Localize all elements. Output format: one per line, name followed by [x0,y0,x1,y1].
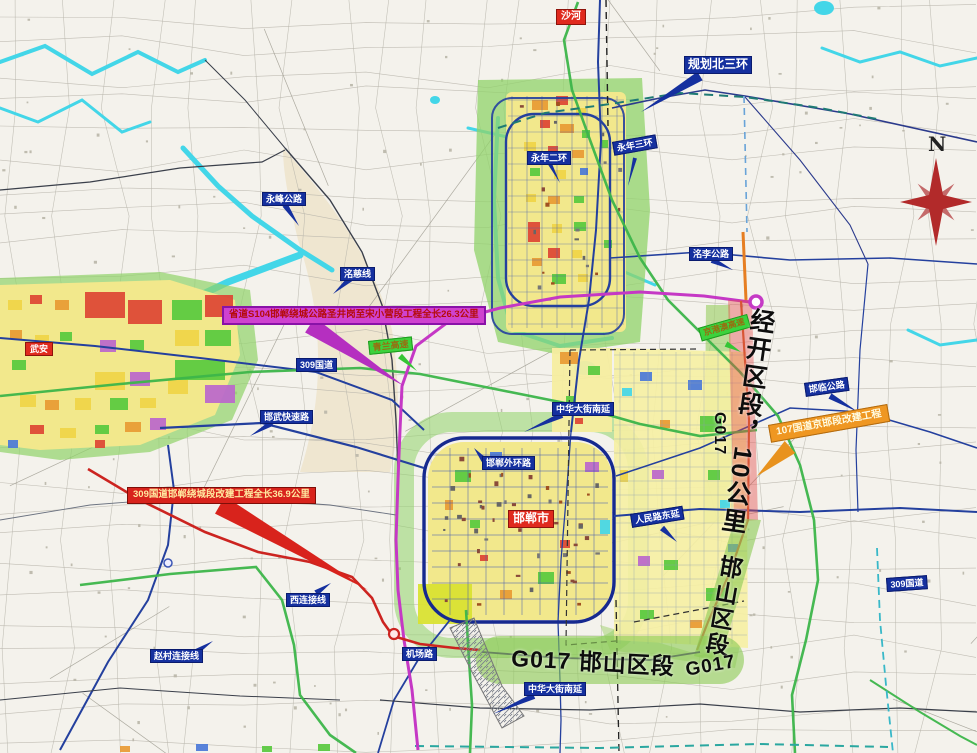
label-guihua-beisanhuan: 规划北三环 [684,56,752,74]
text-g017-bottom-right: G017 [684,651,738,681]
text-hanshan-section-vertical: 邯山区段 [700,553,744,660]
text-g017-right: G017 [710,412,728,455]
label-xi-lianjiexian: 西连接线 [286,593,330,607]
compass-north-letter: N [928,133,946,156]
text-g017-hanshan-band: G017 邯山区段 [511,645,676,680]
label-yongfeng-gonglu: 永峰公路 [262,192,306,206]
banner-309-project: 309国道邯郸绕城段改建工程全长36.9公里 [127,487,316,504]
label-309-guodao-east: 309国道 [886,575,928,592]
label-renminlu-dongyan: 人民路东延 [630,506,685,528]
label-309-guodao-west: 309国道 [296,358,337,372]
label-jichanglu: 机场路 [402,647,437,661]
map-canvas: 沙河规划北三环永年二环永年三环永峰公路洺慈线洺李公路省道S104邯郸绕城公路圣井… [0,0,977,753]
label-shahe: 沙河 [556,9,586,25]
banner-107-project: 107国道京邯段改建工程 [768,404,890,442]
label-zhaocun-lianjiexian: 赵村连接线 [150,649,203,663]
label-yongnian-sanhuan: 永年三环 [612,134,658,156]
label-handan-waihuanlu: 邯郸外环路 [482,456,535,470]
banner-s104-project: 省道S104邯郸绕城公路圣井岗至宋小营段工程全长26.3公里 [222,306,486,325]
label-qinglan-gaosu: 青兰高速 [368,336,413,355]
label-handan-city: 邯郸市 [508,510,554,528]
label-hanlin-gonglu: 邯临公路 [804,377,850,397]
label-yongnian-erhuan: 永年二环 [527,151,571,165]
label-wuan-city: 武安 [25,342,53,356]
label-zhonghua-dajie-nanyan-bottom: 中华大街南延 [524,682,586,696]
label-mingli-gonglu: 洺李公路 [689,247,733,261]
map-labels-layer: 沙河规划北三环永年二环永年三环永峰公路洺慈线洺李公路省道S104邯郸绕城公路圣井… [0,0,977,753]
label-zhonghua-dajie-nanyan-mid: 中华大街南延 [552,402,614,416]
label-hanwu-kuaisulu: 邯武快速路 [260,410,313,424]
label-mingci-xian: 洺慈线 [340,267,375,281]
